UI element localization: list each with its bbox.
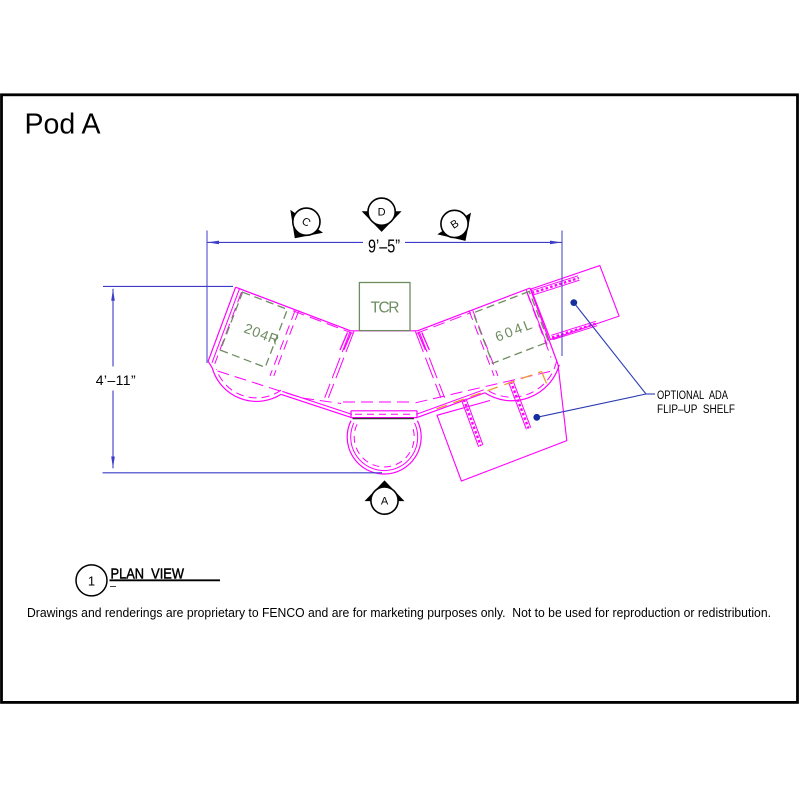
svg-text:Pod A: Pod A [25, 109, 101, 141]
svg-text:4’–11”: 4’–11” [96, 372, 136, 388]
svg-text:–: – [110, 581, 117, 593]
svg-text:9’–5”: 9’–5” [368, 237, 400, 257]
svg-text:1: 1 [88, 574, 95, 589]
svg-text:A: A [381, 496, 389, 508]
svg-text:OPTIONAL ADA: OPTIONAL ADA [657, 390, 728, 402]
svg-text:D: D [378, 207, 386, 219]
svg-text:604L: 604L [493, 316, 534, 345]
svg-text:TCR: TCR [371, 300, 400, 317]
svg-text:Drawings and renderings are pr: Drawings and renderings are proprietary … [27, 605, 771, 620]
svg-text:204R: 204R [242, 320, 281, 348]
svg-text:FLIP–UP SHELF: FLIP–UP SHELF [657, 404, 735, 416]
